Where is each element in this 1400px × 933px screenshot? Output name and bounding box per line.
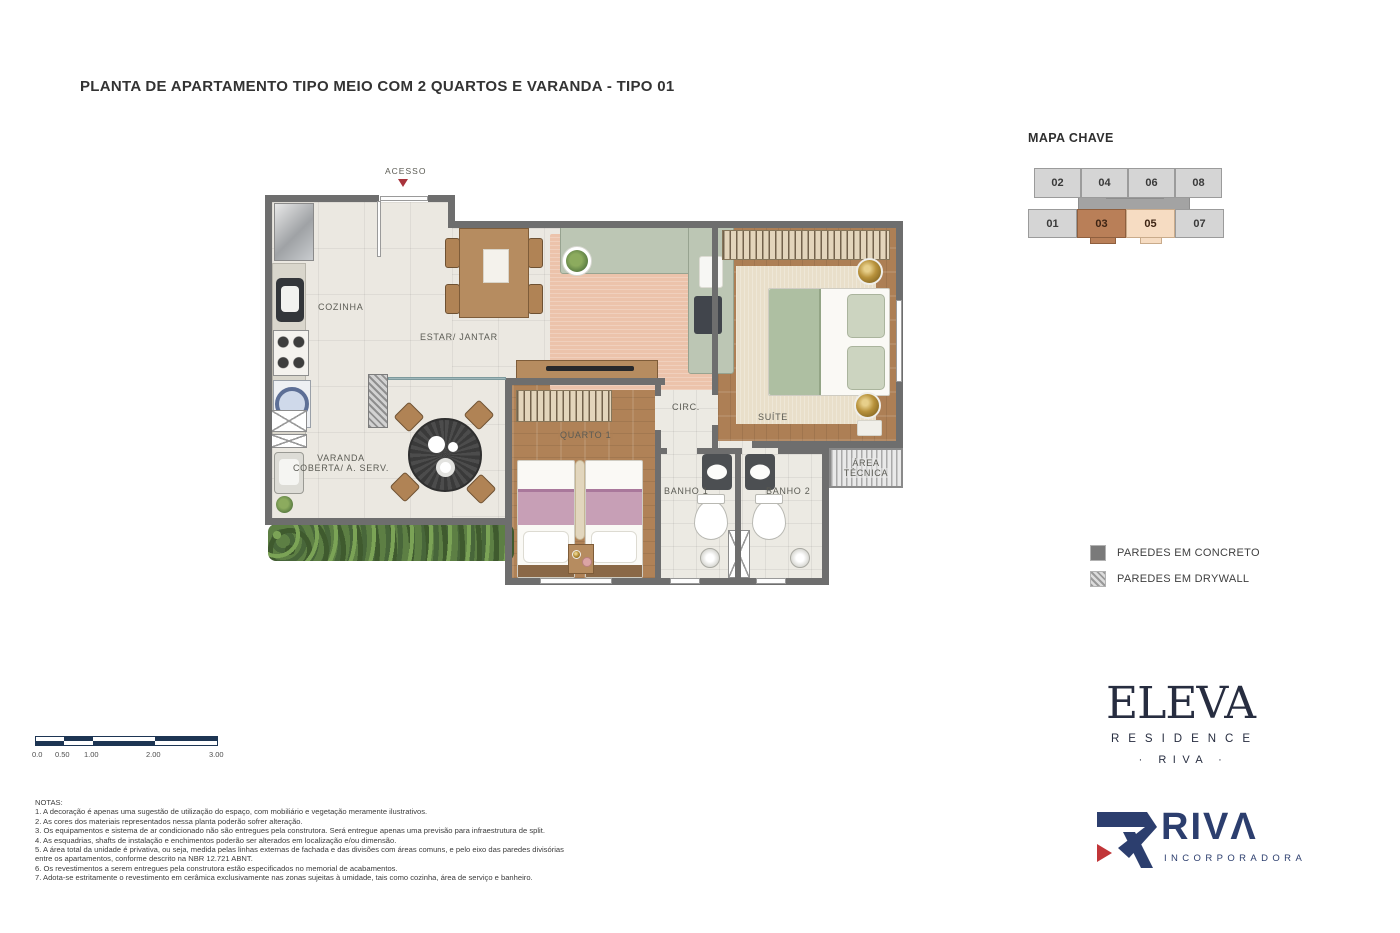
wall-left <box>265 195 272 525</box>
wall-varanda-bottom <box>265 518 512 525</box>
eleva-riva-text: · RIVA · <box>1088 754 1273 766</box>
dining-chair <box>528 284 543 314</box>
suite-window <box>896 300 902 382</box>
bed1-blanket <box>518 489 574 525</box>
shaft-box-1 <box>271 410 307 432</box>
quarto1-wardrobe <box>516 390 612 422</box>
note-line: 2. As cores dos materiais representados … <box>35 817 580 826</box>
banho2-window <box>756 578 786 584</box>
banho1-window <box>670 578 700 584</box>
wall-suite-bottom <box>752 441 903 448</box>
bed2-headboard <box>586 565 642 577</box>
sofa-towel <box>699 256 723 288</box>
note-line: 1. A decoração é apenas uma sugestão de … <box>35 807 580 816</box>
banho1-toilet <box>694 500 728 540</box>
suite-nightstand-lamp <box>856 258 883 285</box>
room-label-banho2: BANHO 2 <box>766 486 810 496</box>
suite-pillow <box>847 294 885 338</box>
tv <box>546 366 634 371</box>
scale-bar: 0.0 0.50 1.00 2.00 3.00 <box>35 736 235 766</box>
keymap-unit-07: 07 <box>1175 209 1224 238</box>
keymap-unit-03-tab <box>1090 238 1116 244</box>
dining-table <box>459 228 529 318</box>
scale-tick: 0.50 <box>55 750 70 759</box>
banho2-sink <box>745 454 775 490</box>
riva-incorporadora-logo: RIVΛ INCORPORADORA <box>1085 806 1305 876</box>
bed2-blanket <box>586 489 642 525</box>
wall-quarto-left <box>505 378 512 585</box>
keymap-unit-05-tab <box>1140 238 1162 244</box>
table-plate <box>436 458 455 477</box>
suite-blanket <box>769 289 821 395</box>
banho2-shower-head <box>790 548 810 568</box>
shaft-box-2 <box>271 434 307 448</box>
riva-logo-mark-icon <box>1085 806 1165 876</box>
suite-double-bed <box>768 288 890 396</box>
living-plant <box>566 250 588 272</box>
beds-bolster <box>575 460 585 540</box>
page: PLANTA DE APARTAMENTO TIPO MEIO COM 2 QU… <box>0 0 1400 933</box>
kitchen-sink <box>276 278 304 322</box>
dining-chair <box>528 238 543 268</box>
note-line: 4. As esquadrias, shafts de instalação e… <box>35 836 580 845</box>
legend-label: PAREDES EM CONCRETO <box>1117 547 1260 559</box>
quarto1-window <box>540 578 612 584</box>
note-line: 5. A área total da unidade é privativa, … <box>35 845 580 864</box>
wall-banho-divider <box>735 448 741 580</box>
table-plate <box>448 442 458 452</box>
table-plate <box>428 436 445 453</box>
room-label-estar-jantar: ESTAR/ JANTAR <box>420 332 498 342</box>
scale-bar-graphic <box>35 736 218 746</box>
scale-tick: 0.0 <box>32 750 42 759</box>
area-tecnica-box: ÁREA TÉCNICA <box>829 448 903 488</box>
entry-threshold <box>380 196 428 201</box>
room-label-area-tecnica: ÁREA <box>852 458 879 468</box>
fridge <box>274 203 314 261</box>
nightstand-item <box>572 550 581 559</box>
table-runner <box>483 249 509 283</box>
suite-mat <box>857 420 882 436</box>
scale-tick: 2.00 <box>146 750 161 759</box>
room-label-suite: SUÍTE <box>758 412 788 422</box>
varanda-sliding-door <box>388 377 506 380</box>
keymap-unit-06: 06 <box>1128 168 1175 198</box>
room-label-varanda: VARANDA COBERTA/ A. SERV. <box>286 453 396 473</box>
notes-title: NOTAS: <box>35 798 580 807</box>
scale-tick: 3.00 <box>209 750 224 759</box>
suite-nightstand-lamp <box>854 392 881 419</box>
banho1-sink <box>702 454 732 490</box>
keymap-unit-01: 01 <box>1028 209 1077 238</box>
wall-top-c <box>448 221 903 228</box>
room-label-area-tecnica: TÉCNICA <box>844 468 888 478</box>
keymap-unit-03: 03 <box>1077 209 1126 238</box>
concrete-swatch-icon <box>1090 545 1106 561</box>
keymap-unit-04: 04 <box>1081 168 1128 198</box>
note-line: 3. Os equipamentos e sistema de ar condi… <box>35 826 580 835</box>
room-label-circ: CIRC. <box>672 402 700 412</box>
dining-chair <box>445 284 460 314</box>
quarto1-nightstand <box>568 544 594 574</box>
scale-tick: 1.00 <box>84 750 99 759</box>
room-label-quarto1: QUARTO 1 <box>558 430 613 440</box>
suite-wardrobe <box>722 230 890 260</box>
eleva-logo-wordmark: ELEVA <box>1088 682 1273 726</box>
key-map-title: MAPA CHAVE <box>1028 131 1228 145</box>
small-plant <box>276 496 293 513</box>
riva-incorporadora-text: INCORPORADORA <box>1164 853 1306 864</box>
varanda-round-table <box>408 418 482 492</box>
bed1-headboard <box>518 565 574 577</box>
legend: PAREDES EM CONCRETO PAREDES EM DRYWALL <box>1090 545 1350 587</box>
key-map: MAPA CHAVE 02 04 06 08 01 03 05 07 <box>1028 131 1228 246</box>
entry-door-leaf <box>377 201 381 257</box>
wall-suite-left <box>712 228 718 395</box>
suite-pillow <box>847 346 885 390</box>
eleva-residence-text: RESIDENCE <box>1088 733 1273 745</box>
wall-top-a <box>265 195 379 202</box>
stove <box>273 330 309 376</box>
legend-label: PAREDES EM DRYWALL <box>1117 573 1249 585</box>
varanda-label-line2: COBERTA/ A. SERV. <box>286 463 396 473</box>
single-bed-1 <box>517 460 575 578</box>
nightstand-item <box>582 557 592 567</box>
legend-item-drywall: PAREDES EM DRYWALL <box>1090 571 1350 587</box>
wall-quarto-top <box>505 378 665 385</box>
riva-logo-text: RIVΛ <box>1161 806 1258 849</box>
wall-suite-left-stub <box>712 425 718 448</box>
legend-item-concrete: PAREDES EM CONCRETO <box>1090 545 1350 561</box>
varanda-column <box>368 374 388 428</box>
eleva-logo: ELEVA RESIDENCE · RIVA · <box>1088 682 1273 766</box>
notes: NOTAS: 1. A decoração é apenas uma suges… <box>35 798 580 883</box>
floor-plan: ÁREA TÉCNICA ACESSO COZINHA ESTAR/ JANTA… <box>0 0 940 620</box>
access-label: ACESSO <box>385 166 426 176</box>
note-line: 7. Adota-se estritamente o revestimento … <box>35 873 580 882</box>
key-map-building: 02 04 06 08 01 03 05 07 <box>1028 168 1228 246</box>
wall-circ-divider-stub <box>655 378 661 396</box>
access-arrow-icon <box>398 179 408 187</box>
keymap-unit-08: 08 <box>1175 168 1222 198</box>
keymap-unit-05: 05 <box>1126 209 1175 238</box>
room-label-banho1: BANHO 1 <box>664 486 708 496</box>
varanda-label-line1: VARANDA <box>286 453 396 463</box>
bed1-pillow <box>523 531 569 563</box>
banho1-shower-head <box>700 548 720 568</box>
banho2-toilet <box>752 500 786 540</box>
room-label-cozinha: COZINHA <box>318 302 363 312</box>
wall-banho-top-a <box>655 448 667 454</box>
dining-chair <box>445 238 460 268</box>
keymap-unit-02: 02 <box>1034 168 1081 198</box>
hedge <box>268 524 514 561</box>
note-line: 6. Os revestimentos a serem entregues pe… <box>35 864 580 873</box>
bed2-pillow <box>591 531 637 563</box>
drywall-swatch-icon <box>1090 571 1106 587</box>
wall-banho-right <box>822 448 829 585</box>
